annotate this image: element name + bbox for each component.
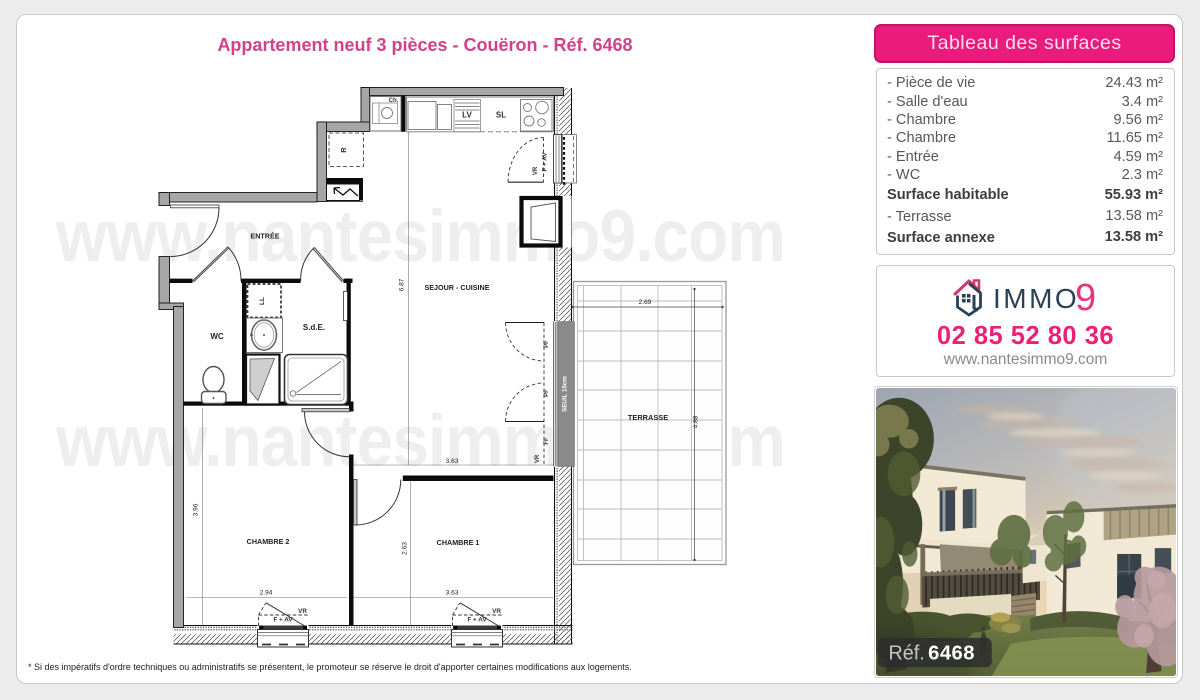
svg-text:2.63: 2.63 <box>402 542 409 555</box>
svg-text:VR: VR <box>535 454 541 463</box>
svg-text:F + AV: F + AV <box>467 617 487 624</box>
svg-text:3.63: 3.63 <box>446 458 459 465</box>
svg-text:SEUIL 15cm: SEUIL 15cm <box>562 376 569 412</box>
svg-text:6468: 6468 <box>928 642 975 664</box>
svg-text:Réf.: Réf. <box>889 642 925 664</box>
svg-text:Ch.: Ch. <box>389 98 399 104</box>
svg-text:PF: PF <box>544 340 550 348</box>
svg-text:4.88: 4.88 <box>693 415 700 428</box>
svg-text:2.69: 2.69 <box>639 299 652 306</box>
svg-text:ENTRÉE: ENTRÉE <box>250 232 279 241</box>
svg-text:6.87: 6.87 <box>399 278 406 291</box>
svg-text:2.94: 2.94 <box>260 590 273 597</box>
svg-text:TERRASSE: TERRASSE <box>628 413 668 422</box>
svg-text:VR: VR <box>533 166 539 175</box>
svg-text:VR: VR <box>298 608 307 615</box>
svg-text:3.96: 3.96 <box>193 503 200 516</box>
svg-text:FF: FF <box>544 437 550 445</box>
svg-text:R: R <box>339 147 348 153</box>
svg-text:3.63: 3.63 <box>446 590 459 597</box>
svg-text:S.d.E.: S.d.E. <box>303 323 325 332</box>
svg-text:CHAMBRE 2: CHAMBRE 2 <box>247 537 290 546</box>
svg-text:LV: LV <box>462 111 472 120</box>
svg-text:SL: SL <box>496 111 506 120</box>
svg-text:VR: VR <box>492 608 501 615</box>
svg-text:SEJOUR - CUISINE: SEJOUR - CUISINE <box>424 283 489 292</box>
svg-text:F + AV: F + AV <box>273 617 293 624</box>
svg-text:WC: WC <box>210 332 224 341</box>
svg-text:9: 9 <box>1075 277 1096 317</box>
svg-text:CHAMBRE 1: CHAMBRE 1 <box>437 538 480 547</box>
svg-text:IMMO: IMMO <box>993 283 1079 314</box>
svg-text:F + AV: F + AV <box>542 152 549 172</box>
svg-text:LL: LL <box>259 297 266 305</box>
svg-text:PF: PF <box>544 389 550 397</box>
